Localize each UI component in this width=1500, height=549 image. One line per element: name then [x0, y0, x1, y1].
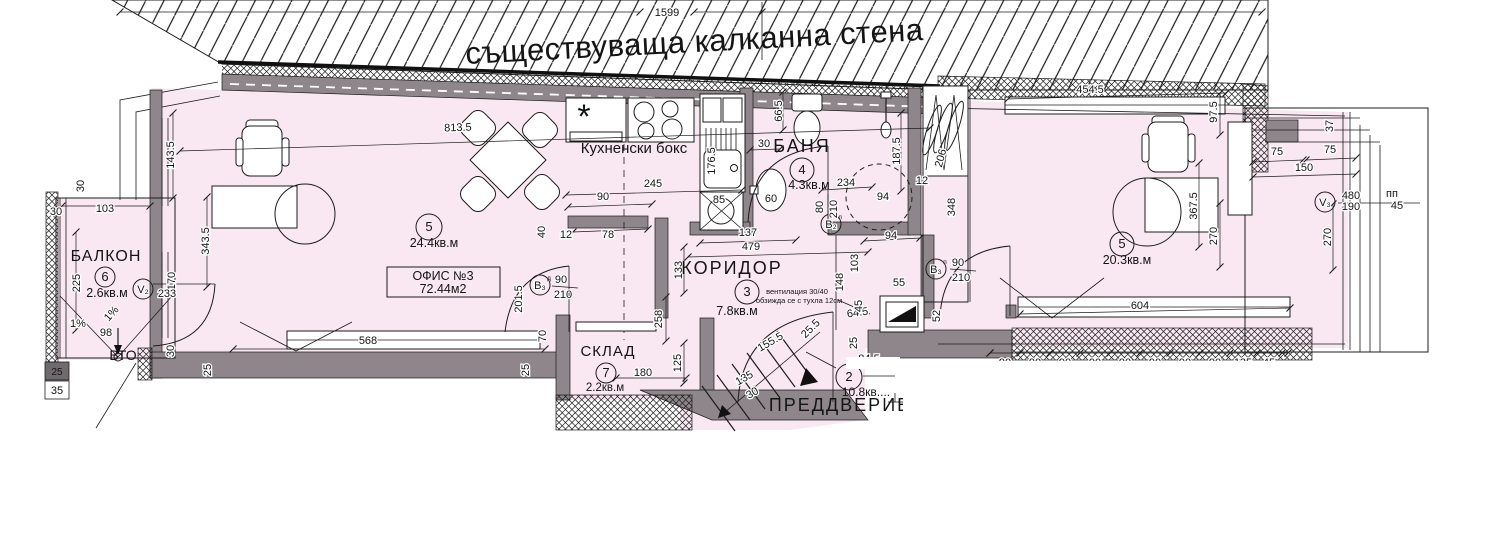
right-room-cabinet [1228, 122, 1252, 215]
toilet-tank [792, 94, 822, 111]
office-tag-line1: ОФИС №3 [412, 269, 473, 283]
dimension-label: 270 [1208, 227, 1220, 245]
shower-icon [881, 92, 891, 98]
dimension-label: 604 [1131, 300, 1149, 312]
kitchen-label: Кухненски бокс [581, 140, 688, 157]
dimension-label: пп [1386, 188, 1398, 200]
dimension-label: 125 [672, 354, 684, 372]
dimension-label: 25 [202, 364, 214, 376]
corridor-label: КОРИДОР [681, 258, 782, 278]
balcony-label: БАЛКОН [71, 248, 142, 265]
storage-area: 2.2кв.м [586, 382, 624, 394]
dimension-label: 479 [742, 241, 760, 253]
dimension-label: 35 [51, 385, 63, 397]
storage-label: СКЛАД [580, 343, 635, 360]
dimension-label: 94 [877, 191, 889, 203]
dimension-label: 30 [50, 206, 62, 218]
svg-text:V₃: V₃ [1319, 197, 1331, 209]
corridor-area: 7.8кв.м [716, 304, 758, 318]
dimension-label: 367.5 [1188, 192, 1200, 220]
dimension-label: 30 [75, 180, 87, 192]
dimension-label: 187.5 [891, 137, 903, 165]
dimension-label: 60 [765, 193, 777, 205]
dimension-label: 78 [602, 229, 614, 241]
svg-text:5: 5 [1118, 236, 1125, 251]
dimension-label: 813.5 [444, 122, 472, 135]
dimension-label: 201.5 [513, 285, 525, 313]
dimension-label: 98 [100, 327, 112, 339]
floor-plan-canvas: 15993010330225981%1%35170233143.5343.581… [0, 0, 1500, 549]
dimension-label: 568 [359, 335, 377, 347]
dimension-label: 30 [165, 345, 177, 357]
dimension-label: 258 [653, 310, 665, 328]
dimension-label: 148 [834, 273, 846, 291]
office-chair [242, 126, 282, 176]
dimension-label: 85 [713, 194, 725, 206]
kitchen-counter [566, 98, 626, 142]
dimension-label: 40 [536, 226, 548, 238]
svg-text:В₃: В₃ [930, 264, 942, 276]
dimension-label: 176.5 [706, 147, 718, 175]
vent-note-line1: вентилация 30/40 [766, 287, 828, 296]
dimension-label: 30 [758, 138, 770, 150]
dimension-label: 1599 [655, 7, 679, 19]
svg-text:п: п [943, 259, 947, 266]
dimension-label: 97.5 [1208, 101, 1220, 122]
dimension-label: 45 [1391, 200, 1403, 212]
dimension-label: 12 [560, 229, 572, 241]
svg-text:3: 3 [743, 284, 750, 299]
svg-text:д: д [547, 275, 551, 282]
dimension-label: 55 [893, 277, 905, 289]
right-room-chair [1148, 122, 1188, 172]
balcony-block-dim: 25 [51, 367, 63, 378]
svg-text:V₂: V₂ [137, 284, 149, 296]
kitchen-star: * [577, 98, 590, 136]
svg-text:210: 210 [828, 200, 840, 218]
dimension-label: 103 [849, 254, 861, 272]
dimension-label: 233 [158, 288, 176, 300]
dimension-label: 150 [1295, 162, 1313, 174]
dimension-label: 348 [946, 198, 958, 216]
bath-label: БАНЯ [773, 136, 830, 156]
dimension-label: 25 [520, 364, 532, 376]
dimension-label: 75 [1271, 146, 1283, 158]
office-tag-line2: 72.44м2 [420, 282, 467, 296]
dimension-label: 343.5 [200, 227, 212, 255]
dimension-label: 25 [848, 337, 860, 349]
dimension-label: 12 [916, 175, 928, 187]
vto-label: ВТО [109, 347, 136, 363]
dimension-label: 94 [885, 230, 897, 242]
storage-shelf [576, 322, 656, 331]
svg-text:В₃: В₃ [534, 280, 546, 292]
svg-text:2: 2 [845, 369, 852, 384]
dimension-label: 454.5 [1076, 84, 1104, 96]
svg-text:7: 7 [602, 365, 609, 380]
svg-text:В₂: В₂ [825, 219, 837, 231]
dimension-label: 45 [853, 300, 865, 312]
dimension-label: 137 [739, 227, 757, 239]
dimension-label: 52 [931, 310, 943, 322]
vestibule-area: 10.8кв.... [842, 385, 890, 399]
svg-text:210: 210 [952, 272, 970, 284]
svg-text:90: 90 [555, 274, 567, 286]
svg-text:4: 4 [798, 162, 805, 177]
office-area: 24.4кв.м [410, 236, 459, 250]
right-room-desk [1145, 178, 1218, 232]
svg-text:6: 6 [101, 269, 108, 284]
dimension-label: 90 [597, 191, 609, 203]
svg-text:5: 5 [425, 219, 432, 234]
svg-text:210: 210 [554, 289, 572, 301]
dimension-label: 1% [70, 318, 86, 330]
floor-plan-drawing: 15993010330225981%1%35170233143.5343.581… [0, 0, 1500, 549]
dimension-label: 270 [1322, 228, 1334, 246]
vent-note-line2: обзижда се с тухла 12см [756, 296, 842, 305]
dimension-label: 180 [634, 367, 652, 379]
dimension-label: 245 [644, 178, 662, 190]
dimension-label: 70 [537, 330, 549, 342]
dimension-label: 143.5 [165, 141, 177, 169]
balcony-area: 2.6кв.м [86, 286, 128, 300]
dimension-label: 103 [96, 203, 114, 215]
dimension-label: 66.5 [773, 100, 785, 121]
svg-text:90: 90 [952, 257, 964, 269]
dimension-label: 225 [71, 274, 83, 292]
dimension-label: 75 [1324, 144, 1336, 156]
dimension-label: 234 [837, 177, 855, 189]
svg-text:80: 80 [814, 201, 826, 213]
crop-covers [846, 357, 1500, 549]
dimension-label: 190 [1342, 201, 1360, 213]
dimension-label: 37 [1324, 120, 1336, 132]
